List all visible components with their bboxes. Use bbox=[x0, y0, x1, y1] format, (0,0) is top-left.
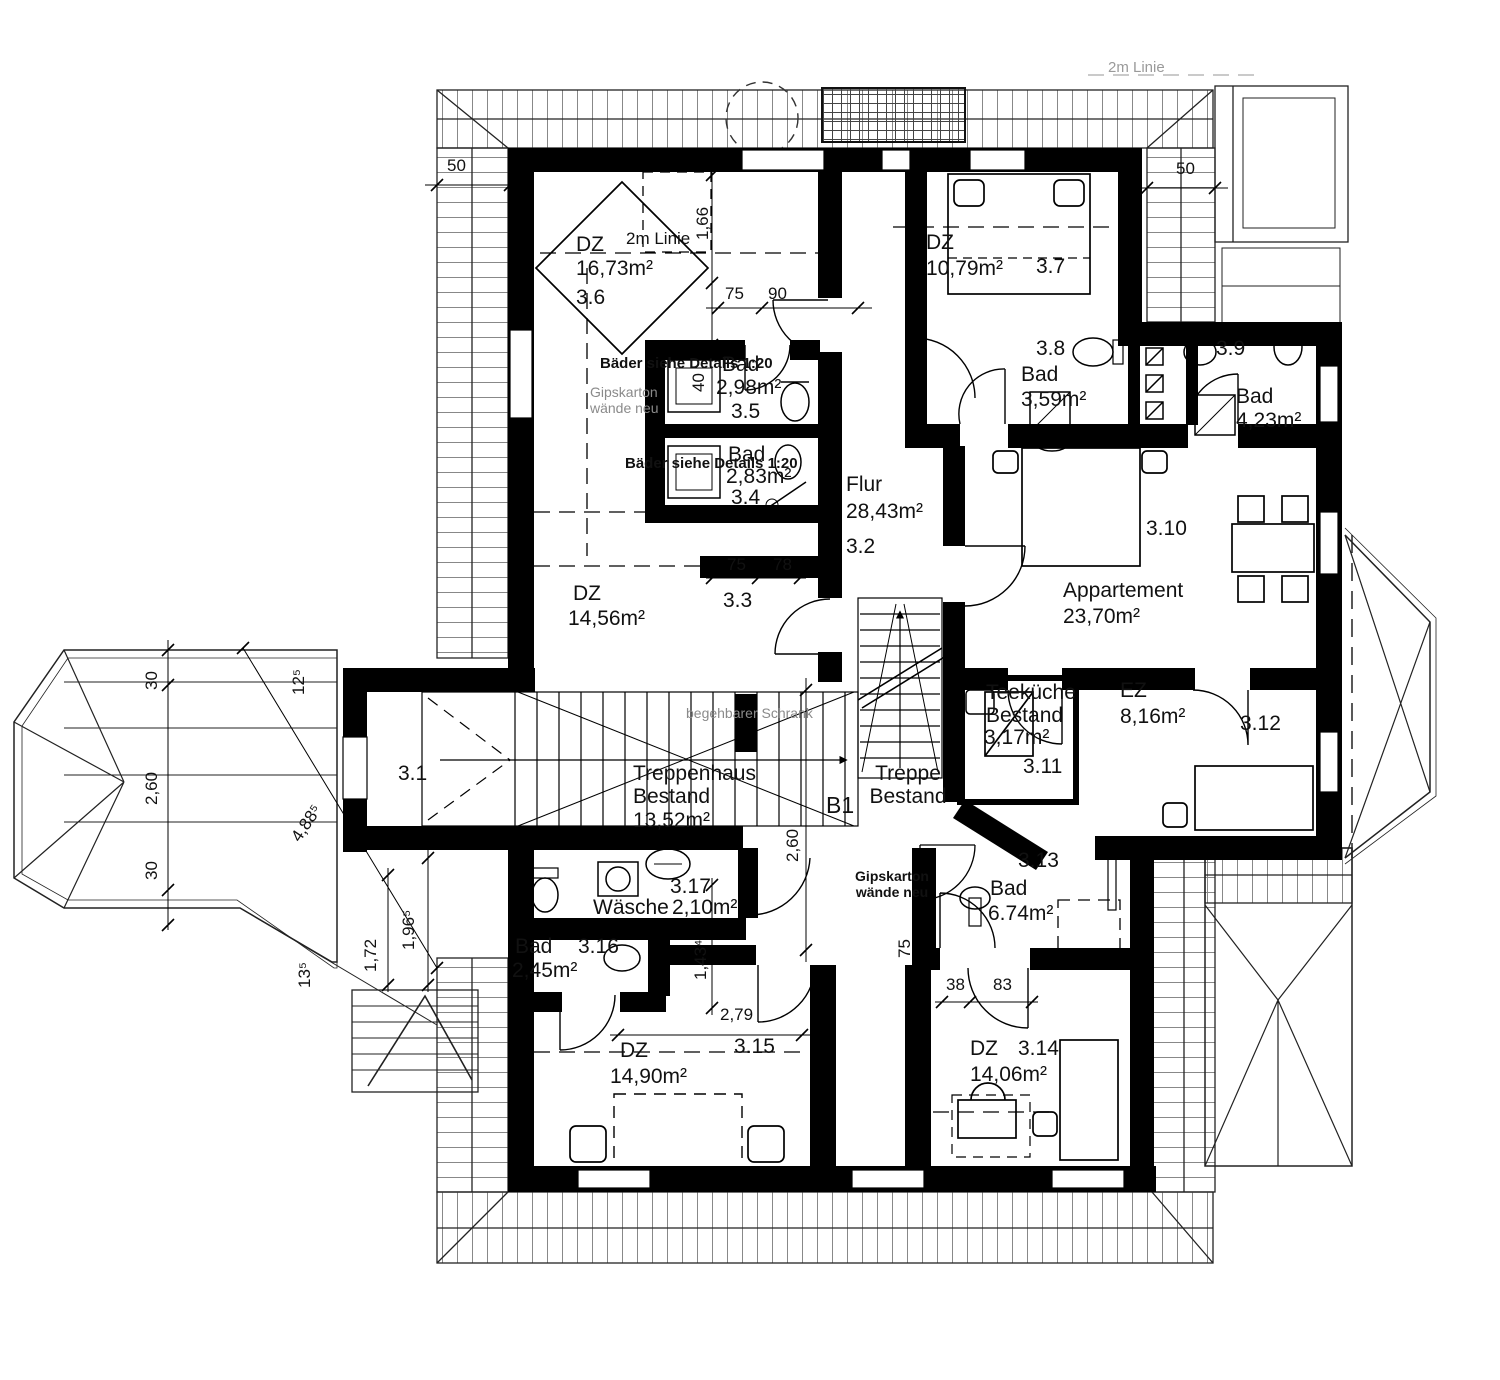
room-3-17-type: Wäsche bbox=[593, 897, 669, 920]
room-3-14-id: 3.14 bbox=[1018, 1038, 1059, 1061]
section-mark-b1: B1 bbox=[826, 793, 854, 818]
room-3-2-area: 28,43m² bbox=[846, 501, 923, 524]
existing-stair bbox=[858, 598, 946, 778]
drywall-note-2: Gipskarton wände neu bbox=[846, 868, 938, 900]
room-3-7-area: 10,79m² bbox=[926, 258, 1003, 281]
dim-13-5: 13⁵ bbox=[296, 962, 314, 988]
drywall-note-1: Gipskarton wände neu bbox=[590, 384, 682, 416]
right-bay bbox=[1345, 528, 1436, 864]
dim-30-bay-bottom: 30 bbox=[143, 861, 161, 880]
room-3-6-id: 3.6 bbox=[576, 287, 605, 310]
room-3-11-area: 3,17m² bbox=[984, 727, 1049, 750]
room-3-16-type: Bad bbox=[515, 936, 552, 959]
room-3-11-id: 3.11 bbox=[1023, 756, 1062, 779]
room-3-13-type: Bad bbox=[990, 878, 1027, 901]
room-3-9-id: 3.9 bbox=[1216, 338, 1245, 361]
room-3-14-type: DZ bbox=[970, 1038, 998, 1061]
room-3-10-area: 23,70m² bbox=[1063, 606, 1140, 629]
room-3-1-id: 3.1 bbox=[398, 763, 427, 786]
room-3-4-id: 3.4 bbox=[731, 487, 760, 510]
room-3-3-id: 3.3 bbox=[723, 590, 752, 613]
shaft bbox=[1146, 348, 1163, 419]
room-3-11-type: Teeküche Bestand bbox=[986, 682, 1082, 727]
dim-75-corridor: 75 bbox=[896, 939, 914, 958]
dim-75-top: 75 bbox=[725, 285, 744, 303]
room-3-14-area: 14,06m² bbox=[970, 1064, 1047, 1087]
room-3-13-id: 3.13 bbox=[1018, 850, 1059, 873]
room-3-9-type: Bad bbox=[1236, 386, 1273, 409]
room-3-1-type: Treppenhaus Bestand bbox=[633, 763, 778, 808]
dim-1-66: 1,66 bbox=[694, 207, 712, 240]
bath-detail-note-2: Bäder siehe Details 1:20 bbox=[625, 456, 798, 472]
bath-detail-note-1: Bäder siehe Details 1:20 bbox=[600, 356, 773, 372]
room-3-12-area: 8,16m² bbox=[1120, 706, 1185, 729]
room-3-16-area: 2,45m² bbox=[512, 960, 577, 983]
dim-2-60-corridor: 2,60 bbox=[784, 829, 802, 862]
room-3-2-id: 3.2 bbox=[846, 536, 875, 559]
room-3-2-type: Flur bbox=[846, 474, 882, 497]
room-3-10-id: 3.10 bbox=[1146, 518, 1187, 541]
chimney-hatch bbox=[822, 88, 965, 142]
room-3-8-type: Bad bbox=[1021, 364, 1058, 387]
floor-plan: DZ 16,73m² 3.6 DZ 10,79m² 3.7 3.8 Bad 3,… bbox=[0, 0, 1500, 1380]
room-3-8-area: 3,59m² bbox=[1021, 389, 1086, 412]
dim-30-bay-top: 30 bbox=[143, 671, 161, 690]
dim-1-43: 1,43⁴ bbox=[692, 940, 710, 980]
room-3-5-area: 2,98m² bbox=[716, 377, 781, 400]
dim-2-79: 2,79 bbox=[720, 1006, 753, 1024]
room-3-17-area: 2,10m² bbox=[672, 897, 737, 920]
dim-40: 40 bbox=[690, 373, 708, 392]
room-3-8-id: 3.8 bbox=[1036, 338, 1065, 361]
room-3-12-type: EZ bbox=[1120, 680, 1147, 703]
existing-stair-label: Treppe Bestand bbox=[862, 763, 954, 808]
room-3-3-area: 14,56m² bbox=[568, 608, 645, 631]
dim-1-96: 1,96⁵ bbox=[400, 910, 418, 950]
dim-90-top: 90 bbox=[768, 285, 787, 303]
dim-38: 38 bbox=[946, 976, 965, 994]
room-3-15-id: 3.15 bbox=[734, 1036, 775, 1059]
walk-in-closet-label: begehbarer Schrank bbox=[686, 705, 836, 721]
room-3-7-id: 3.7 bbox=[1036, 256, 1065, 279]
two-m-line-label: 2m Linie bbox=[626, 230, 690, 248]
room-3-13-area: 6.74m² bbox=[988, 903, 1053, 926]
balcony bbox=[1215, 86, 1348, 324]
room-3-15-area: 14,90m² bbox=[610, 1066, 687, 1089]
room-3-1-area: 13,52m² bbox=[633, 810, 710, 833]
room-3-3-type: DZ bbox=[573, 583, 601, 606]
dim-50-topright: 50 bbox=[1176, 160, 1195, 178]
two-m-line-top-label: 2m Linie bbox=[1108, 60, 1165, 76]
room-3-5-id: 3.5 bbox=[731, 401, 760, 424]
room-3-6-area: 16,73m² bbox=[576, 258, 653, 281]
room-3-10-type: Appartement bbox=[1063, 580, 1183, 603]
room-3-12-id: 3.12 bbox=[1240, 713, 1281, 736]
dim-83: 83 bbox=[993, 976, 1012, 994]
floorplan-drawing bbox=[0, 0, 1500, 1380]
room-3-9-area: 4,23m² bbox=[1236, 410, 1301, 433]
dim-12-5: 12⁵ bbox=[290, 669, 308, 695]
room-3-7-type: DZ bbox=[926, 232, 954, 255]
room-3-16-id: 3.16 bbox=[578, 936, 619, 959]
room-3-6-type: DZ bbox=[576, 234, 604, 257]
dim-1-72: 1,72 bbox=[362, 939, 380, 972]
dim-75-mid: 75 bbox=[727, 556, 746, 574]
dim-78-mid: 78 bbox=[773, 556, 792, 574]
dim-2-60-bay: 2,60 bbox=[143, 772, 161, 805]
room-3-15-type: DZ bbox=[620, 1040, 648, 1063]
dim-50-topleft: 50 bbox=[447, 157, 466, 175]
